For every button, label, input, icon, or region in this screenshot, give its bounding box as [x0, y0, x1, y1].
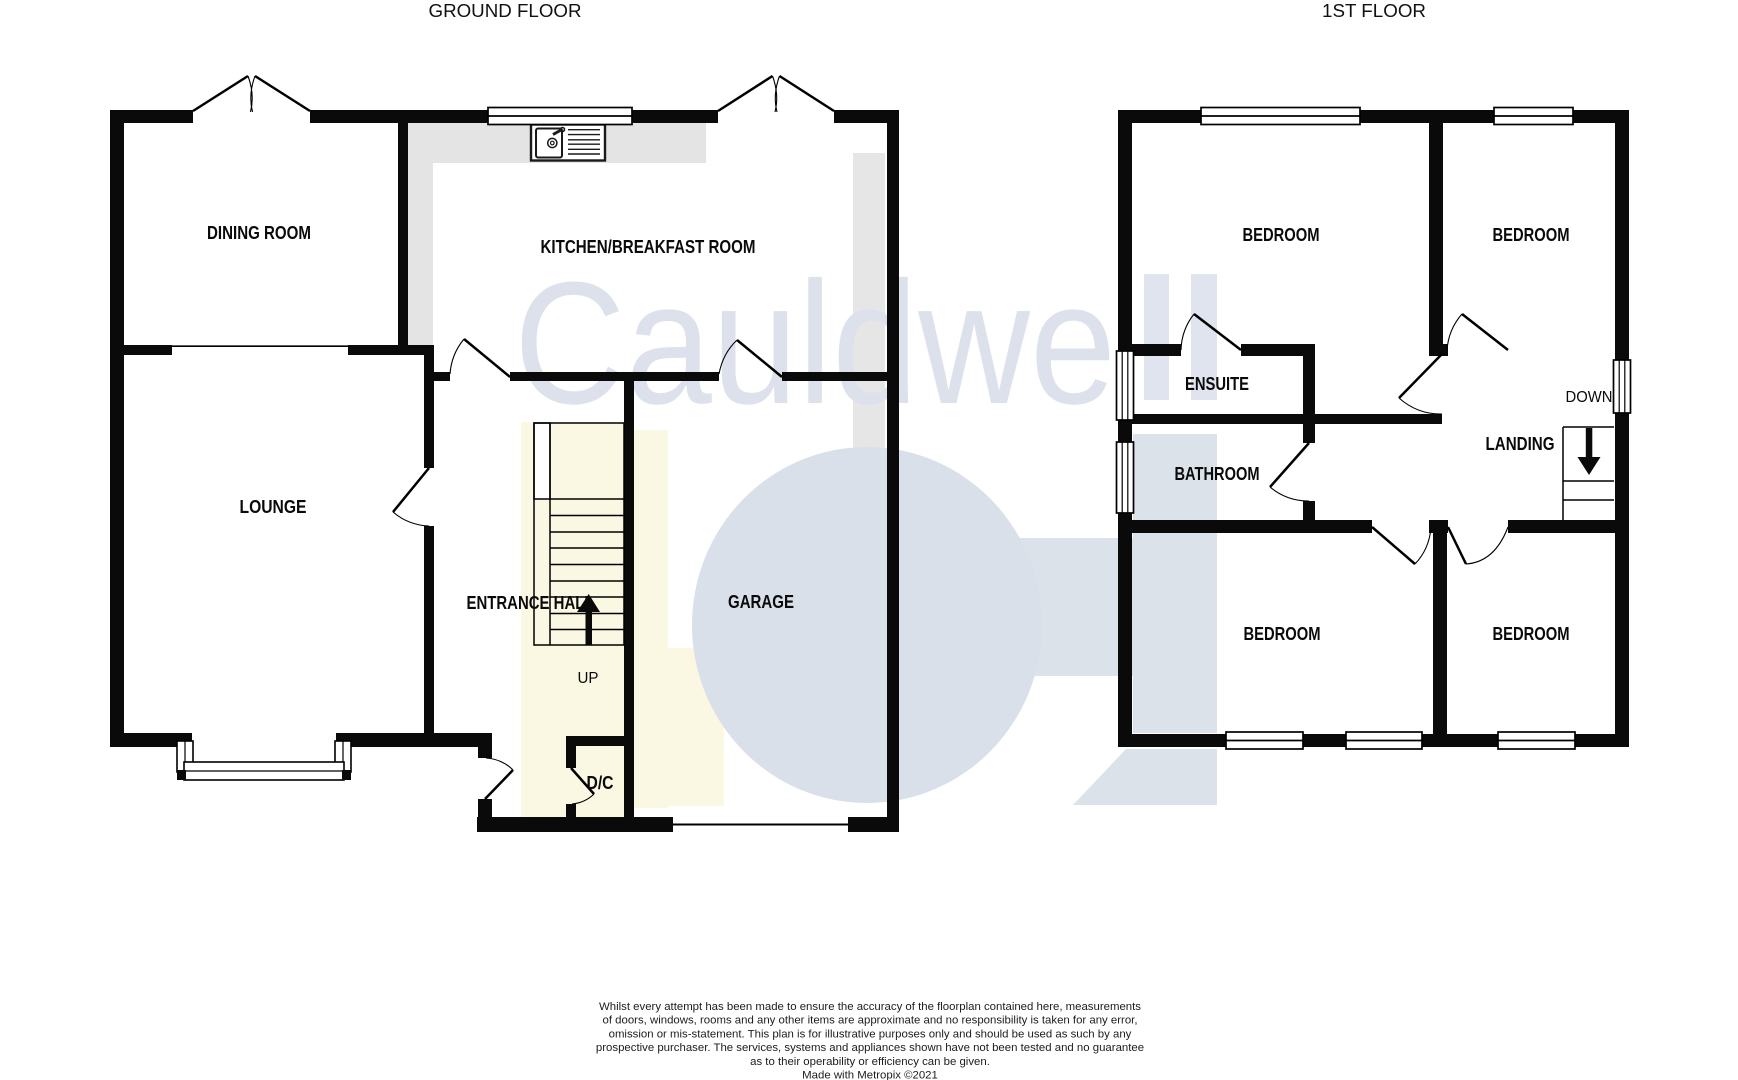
svg-text:GARAGE: GARAGE — [728, 592, 794, 612]
svg-text:as to their operability or eff: as to their operability or efficiency ca… — [750, 1056, 990, 1068]
svg-text:BATHROOM: BATHROOM — [1175, 464, 1260, 484]
svg-text:Whilst every attempt has been: Whilst every attempt has been made to en… — [599, 1001, 1141, 1013]
svg-text:DOWN: DOWN — [1566, 389, 1613, 406]
svg-text:BEDROOM: BEDROOM — [1493, 225, 1570, 245]
svg-text:GROUND FLOOR: GROUND FLOOR — [429, 1, 582, 21]
svg-text:Made with Metropix ©2021: Made with Metropix ©2021 — [802, 1070, 938, 1080]
svg-text:KITCHEN/BREAKFAST ROOM: KITCHEN/BREAKFAST ROOM — [541, 237, 756, 257]
svg-text:BEDROOM: BEDROOM — [1493, 624, 1570, 644]
svg-text:LOUNGE: LOUNGE — [240, 497, 307, 517]
svg-text:omission or mis-statement. Thi: omission or mis-statement. This plan is … — [609, 1028, 1132, 1040]
svg-text:1ST FLOOR: 1ST FLOOR — [1322, 1, 1426, 21]
svg-text:ENSUITE: ENSUITE — [1185, 374, 1249, 394]
svg-text:UP: UP — [578, 670, 599, 687]
svg-text:BEDROOM: BEDROOM — [1244, 624, 1321, 644]
svg-text:D/C: D/C — [587, 773, 614, 793]
svg-text:DINING ROOM: DINING ROOM — [207, 223, 311, 243]
svg-text:ENTRANCE HALL: ENTRANCE HALL — [467, 593, 594, 613]
svg-text:LANDING: LANDING — [1486, 434, 1555, 454]
svg-text:prospective purchaser. The ser: prospective purchaser. The services, sys… — [596, 1042, 1144, 1054]
svg-text:of doors, windows, rooms and a: of doors, windows, rooms and any other i… — [603, 1015, 1138, 1027]
svg-text:BEDROOM: BEDROOM — [1243, 225, 1320, 245]
svg-text:Cauldwe: Cauldwe — [514, 245, 1116, 440]
